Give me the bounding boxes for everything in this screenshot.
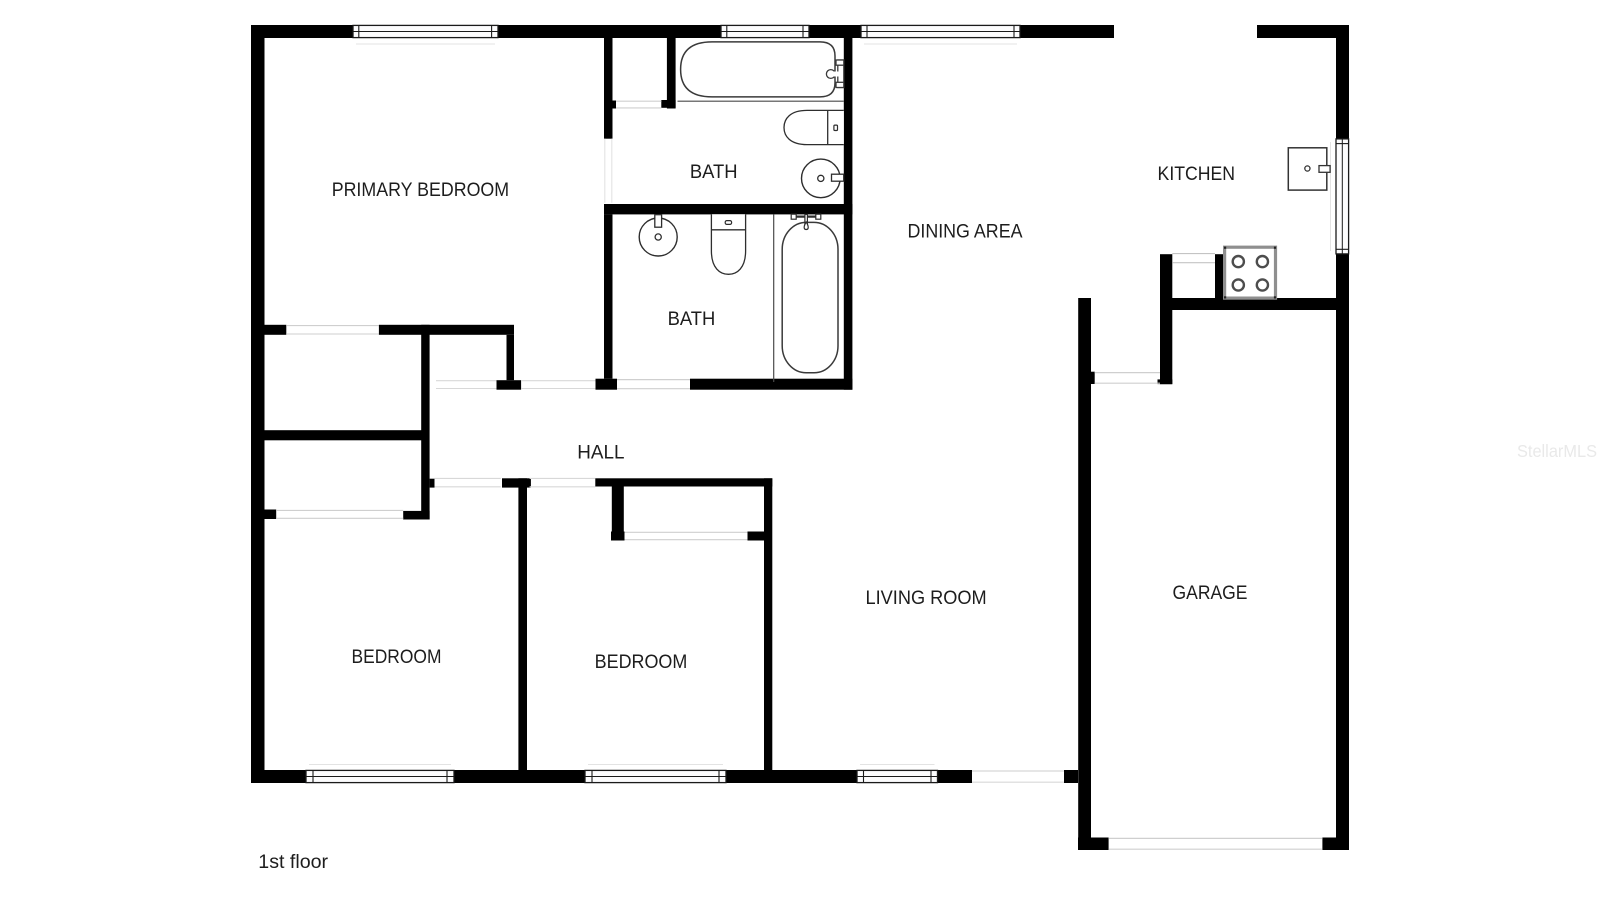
svg-text:BEDROOM: BEDROOM <box>352 646 442 668</box>
svg-text:LIVING ROOM: LIVING ROOM <box>866 587 987 609</box>
svg-text:StellarMLS: StellarMLS <box>1517 441 1597 461</box>
svg-text:BATH: BATH <box>668 308 716 330</box>
svg-text:PRIMARY BEDROOM: PRIMARY BEDROOM <box>332 179 509 201</box>
svg-text:HALL: HALL <box>577 441 624 463</box>
svg-text:GARAGE: GARAGE <box>1173 582 1248 604</box>
svg-text:BEDROOM: BEDROOM <box>595 651 688 673</box>
svg-text:KITCHEN: KITCHEN <box>1158 163 1236 185</box>
svg-text:BATH: BATH <box>690 161 738 183</box>
svg-text:DINING AREA: DINING AREA <box>908 221 1024 243</box>
svg-text:1st floor: 1st floor <box>258 851 328 873</box>
